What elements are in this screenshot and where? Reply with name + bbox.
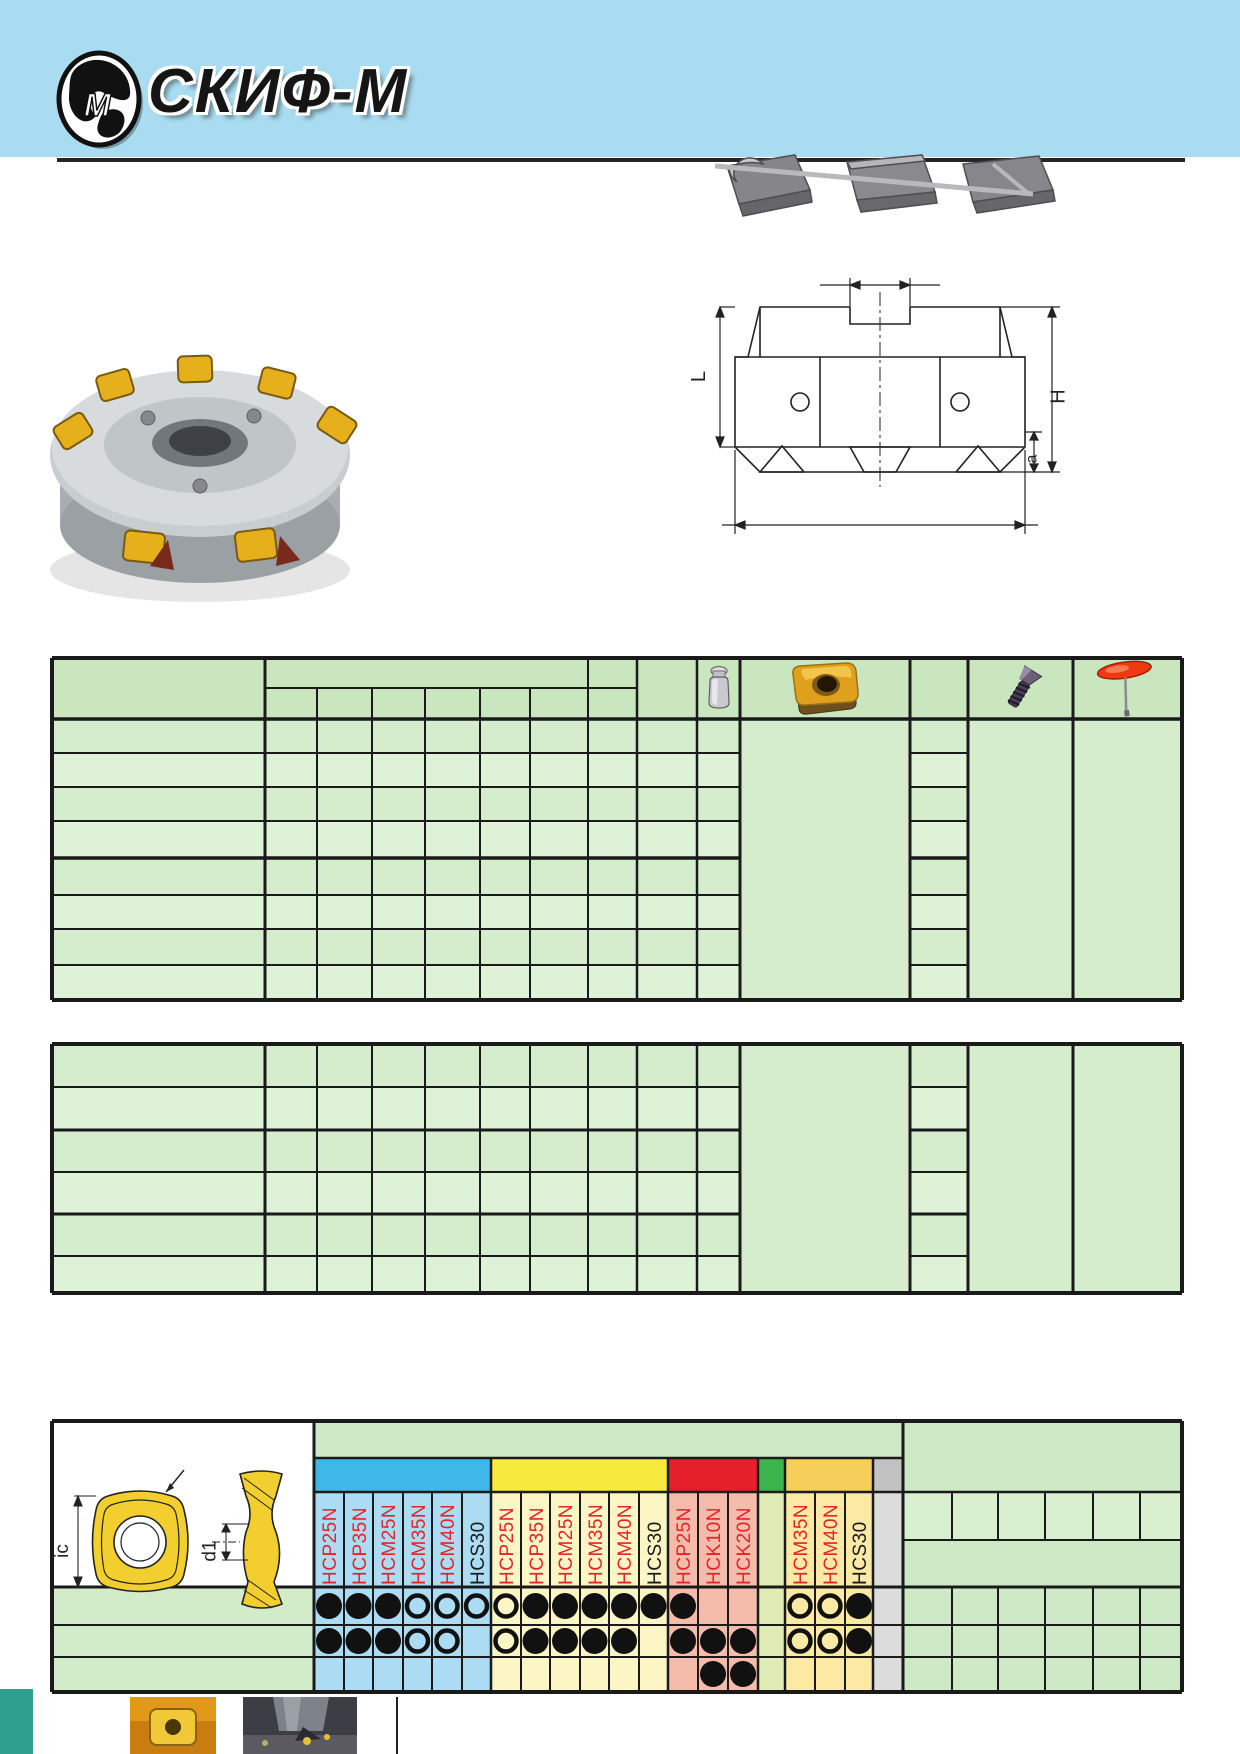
insert-drawing [62, 1462, 308, 1684]
mark-filled [846, 1628, 872, 1654]
dim-label-d1: d1 [200, 1540, 222, 1561]
grade-label: HCK20N [728, 1492, 758, 1587]
mark-filled [700, 1628, 726, 1654]
mark-filled [375, 1628, 401, 1654]
mark-filled [700, 1661, 726, 1687]
insert-photo-small [130, 1697, 216, 1754]
insert-photo-icon [786, 660, 866, 718]
grade-label: HCP35N [344, 1492, 373, 1587]
mark-filled [846, 1593, 872, 1619]
mark-filled [611, 1593, 637, 1619]
mark-filled [670, 1593, 696, 1619]
grade-label: HCP25N [668, 1492, 698, 1587]
grade-label: HCM40N [609, 1492, 639, 1587]
footer-divider [396, 1697, 398, 1754]
mark-filled [523, 1593, 549, 1619]
grade-label: HCP25N [491, 1492, 521, 1587]
mark-filled [552, 1628, 578, 1654]
milling-action-photo [243, 1697, 357, 1754]
mark-filled [375, 1593, 401, 1619]
grade-label: HCM35N [580, 1492, 609, 1587]
grade-label: HCM35N [403, 1492, 432, 1587]
grade-label: HCM40N [432, 1492, 462, 1587]
grade-label: HCP25N [314, 1492, 344, 1587]
grade-label: HCS30 [639, 1492, 668, 1587]
grade-label: HCM40N [815, 1492, 845, 1587]
mark-filled [730, 1661, 756, 1687]
grade-label: HCM35N [785, 1492, 815, 1587]
mark-filled [730, 1628, 756, 1654]
mark-filled [346, 1628, 372, 1654]
grade-label: HCK10N [698, 1492, 728, 1587]
mark-filled [611, 1628, 637, 1654]
mark-filled [316, 1593, 342, 1619]
mark-filled [523, 1628, 549, 1654]
grade-label: HCP35N [521, 1492, 550, 1587]
dim-label-ic: ic [52, 1544, 74, 1558]
grade-label: HCM25N [373, 1492, 403, 1587]
weight-icon [703, 665, 735, 711]
grade-label: HCS30 [462, 1492, 491, 1587]
torx-key-icon [1096, 660, 1158, 718]
grade-label: HCS30 [845, 1492, 873, 1587]
page-edge-tab [0, 1689, 33, 1754]
mark-filled [641, 1593, 667, 1619]
mark-filled [346, 1593, 372, 1619]
mark-filled [670, 1628, 696, 1654]
mark-filled [316, 1628, 342, 1654]
catalog-page: M СКИФ-М [0, 0, 1240, 1754]
grade-label: HCM25N [550, 1492, 580, 1587]
mark-filled [552, 1593, 578, 1619]
clamp-screw-icon [990, 662, 1054, 716]
mark-filled [582, 1628, 608, 1654]
mark-filled [582, 1593, 608, 1619]
